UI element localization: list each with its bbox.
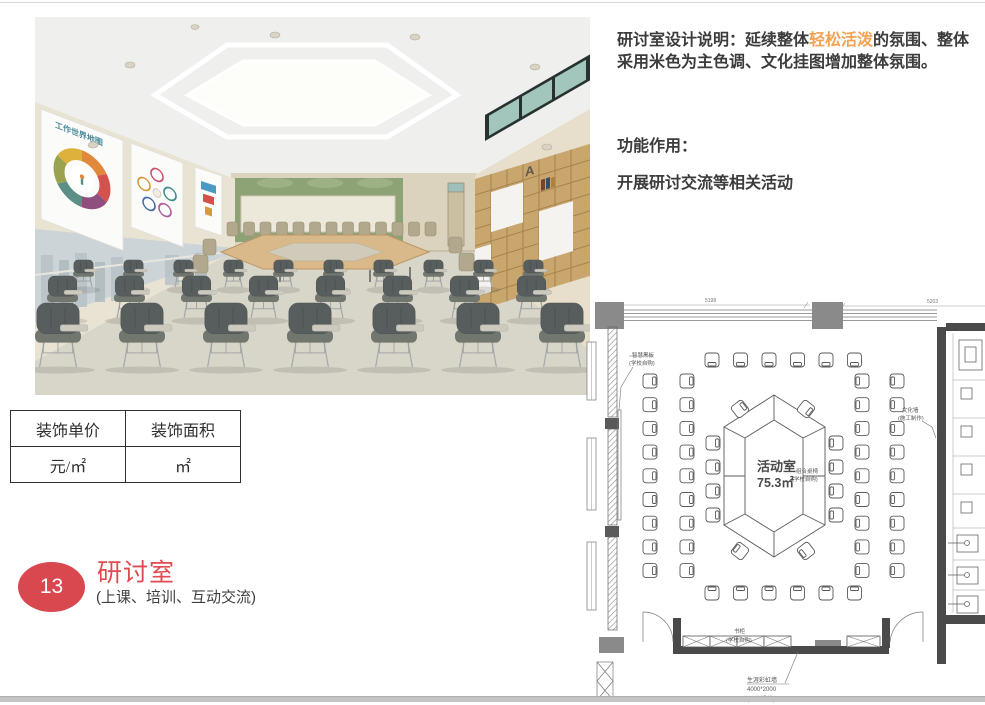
chair-icon	[680, 374, 694, 388]
header-unit-price: 装饰单价	[11, 411, 126, 447]
section-subtitle: (上课、培训、互动交流)	[96, 586, 256, 607]
chair-icon	[706, 436, 720, 450]
section-number-badge: 13	[18, 562, 85, 612]
chair-icon	[343, 222, 354, 236]
svg-text:4000*2000: 4000*2000	[747, 687, 777, 693]
chair-icon	[855, 564, 869, 578]
description-paragraph: 研讨室设计说明：延续整体轻松活泼的氛围、整体采用米色为主色调、文化挂图增加整体氛…	[617, 30, 985, 74]
chair-icon	[643, 398, 657, 412]
chair-icon	[855, 516, 869, 530]
slide-top-border	[0, 2, 985, 3]
table-value-row: 元/㎡ ㎡	[11, 447, 241, 483]
chair-icon	[680, 540, 694, 554]
chair-icon	[244, 222, 255, 236]
decoration-price-table: 装饰单价 装饰面积 元/㎡ ㎡	[10, 410, 241, 483]
chair-icon	[643, 493, 657, 507]
value-area: ㎡	[126, 447, 241, 483]
chair-icon	[829, 484, 843, 498]
dimension-right: 5203	[927, 299, 938, 305]
chair-icon	[890, 493, 904, 507]
presentation-slide: 工作世界地图	[0, 0, 985, 705]
function-label: 功能作用：	[617, 136, 697, 158]
room-rendering-photo: 工作世界地图	[35, 17, 590, 395]
chair-icon	[680, 564, 694, 578]
chair-icon	[227, 222, 238, 236]
chair-icon	[310, 222, 321, 236]
chair-icon	[643, 445, 657, 459]
chair-icon	[680, 445, 694, 459]
table-header-row: 装饰单价 装饰面积	[11, 411, 241, 447]
annotation-bookcase: 书柜 (学校自购)	[726, 627, 752, 644]
chair-icon	[855, 445, 869, 459]
chair-icon	[819, 353, 833, 367]
column	[812, 302, 843, 329]
chair-icon	[890, 516, 904, 530]
chair-icon	[855, 398, 869, 412]
chair-icon	[734, 353, 748, 367]
floor-plan: 5198 5203	[585, 290, 985, 705]
chair-icon	[425, 222, 436, 236]
chair-icon	[643, 469, 657, 483]
chair-icon	[260, 222, 271, 236]
top-window-wall	[624, 310, 937, 321]
chair-icon	[643, 540, 657, 554]
chair-icon	[376, 222, 387, 236]
chair-icon	[890, 445, 904, 459]
chair-icon	[730, 541, 750, 561]
svg-text:智慧黑板: 智慧黑板	[632, 351, 655, 359]
chair-icon	[848, 586, 862, 600]
dimension-left: 5198	[705, 298, 716, 304]
chair-icon	[680, 469, 694, 483]
chair-icon	[791, 353, 805, 367]
chair-icon	[705, 353, 719, 367]
chair-icon	[680, 398, 694, 412]
svg-text:(施工制作): (施工制作)	[898, 414, 924, 422]
chair-icon	[855, 421, 869, 435]
chair-icon	[855, 469, 869, 483]
chair-icon	[203, 239, 216, 255]
chair-icon	[680, 493, 694, 507]
chair-icon	[643, 516, 657, 530]
section-number: 13	[40, 575, 63, 599]
door-transom	[448, 183, 464, 192]
chair-icon	[706, 460, 720, 474]
furniture-note: 组合桌椅	[796, 467, 819, 475]
chair-icon	[855, 374, 869, 388]
svg-text:(学校自购): (学校自购)	[629, 359, 655, 367]
chair-icon	[705, 586, 719, 600]
chair-icon	[890, 469, 904, 483]
right-wall-adjacent-room	[937, 323, 985, 664]
svg-text:(学校自购): (学校自购)	[726, 636, 752, 644]
left-wall	[587, 327, 621, 630]
chair-icon	[762, 586, 776, 600]
chair-icon	[643, 374, 657, 388]
room-area: 75.3㎡	[757, 475, 794, 490]
svg-text:文化墙: 文化墙	[902, 406, 919, 414]
chair-icon	[819, 586, 833, 600]
column	[595, 302, 624, 329]
chair-icon	[643, 564, 657, 578]
chair-icon	[829, 508, 843, 522]
slide-bottom-border	[0, 696, 985, 702]
highlight-text: 轻松活泼	[809, 32, 873, 49]
design-description: 研讨室设计说明：延续整体轻松活泼的氛围、整体采用米色为主色调、文化挂图增加整体氛…	[617, 30, 985, 74]
chair-icon	[855, 540, 869, 554]
svg-text:书柜: 书柜	[734, 627, 746, 635]
shelf-letter: A	[525, 162, 535, 180]
chair-icon	[449, 237, 462, 253]
chair-icon	[890, 564, 904, 578]
chair-icon	[855, 493, 869, 507]
column	[599, 637, 624, 653]
poster-small	[195, 167, 222, 236]
chair-icon	[706, 508, 720, 522]
furniture-note-2: (学校自购)	[792, 475, 818, 483]
chair-icon	[791, 586, 805, 600]
room-label: 活动室	[757, 459, 796, 474]
chair-icon	[643, 421, 657, 435]
chair-icon	[293, 222, 304, 236]
chair-icon	[890, 421, 904, 435]
chair-icon	[459, 253, 474, 271]
header-area: 装饰面积	[126, 411, 241, 447]
chair-icon	[890, 374, 904, 388]
chair-icon	[706, 484, 720, 498]
chair-icon	[409, 222, 420, 236]
chair-icon	[680, 516, 694, 530]
chair-icon	[680, 421, 694, 435]
chair-icon	[277, 222, 288, 236]
chair-icon	[848, 353, 862, 367]
svg-text:生涯彩虹墙: 生涯彩虹墙	[747, 676, 777, 684]
chair-icon	[392, 222, 403, 236]
value-unit-price: 元/㎡	[11, 447, 126, 483]
chair-icon	[829, 436, 843, 450]
chair-icon	[796, 541, 816, 561]
chair-icon	[359, 222, 370, 236]
chair-icon	[326, 222, 337, 236]
chair-icon	[762, 353, 776, 367]
chair-icon	[829, 460, 843, 474]
chair-icon	[734, 586, 748, 600]
chair-icon	[890, 540, 904, 554]
function-text: 开展研讨交流等相关活动	[617, 173, 793, 195]
section-title: 研讨室	[97, 553, 175, 589]
